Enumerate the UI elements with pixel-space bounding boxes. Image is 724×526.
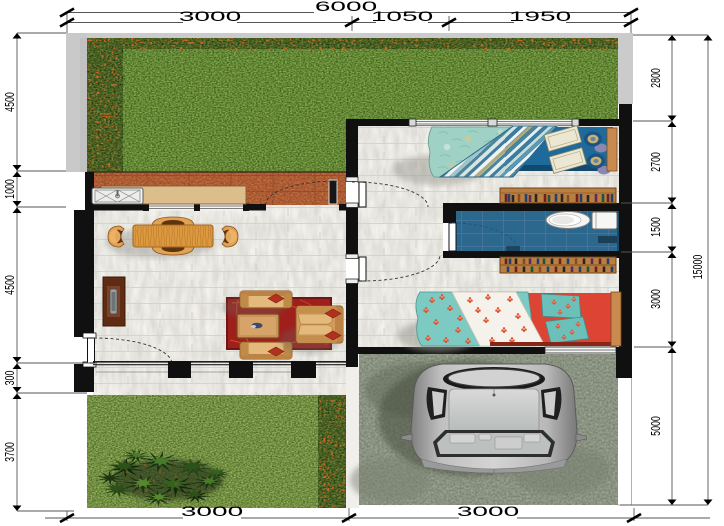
svg-text:3000: 3000: [649, 289, 663, 309]
svg-text:5000: 5000: [649, 416, 663, 436]
svg-text:300: 300: [3, 371, 17, 386]
svg-text:1050: 1050: [371, 8, 433, 24]
svg-text:15000: 15000: [691, 255, 705, 280]
svg-text:1000: 1000: [3, 179, 17, 199]
svg-text:6000: 6000: [315, 0, 377, 14]
svg-text:1500: 1500: [649, 217, 663, 237]
svg-text:3000: 3000: [179, 8, 241, 24]
svg-text:4500: 4500: [3, 275, 17, 295]
svg-text:2800: 2800: [649, 68, 663, 88]
svg-text:3000: 3000: [457, 503, 519, 519]
svg-text:1950: 1950: [509, 8, 571, 24]
svg-text:3000: 3000: [181, 503, 243, 519]
svg-text:4500: 4500: [3, 92, 17, 112]
svg-text:3700: 3700: [3, 442, 17, 462]
svg-text:2700: 2700: [649, 152, 663, 172]
